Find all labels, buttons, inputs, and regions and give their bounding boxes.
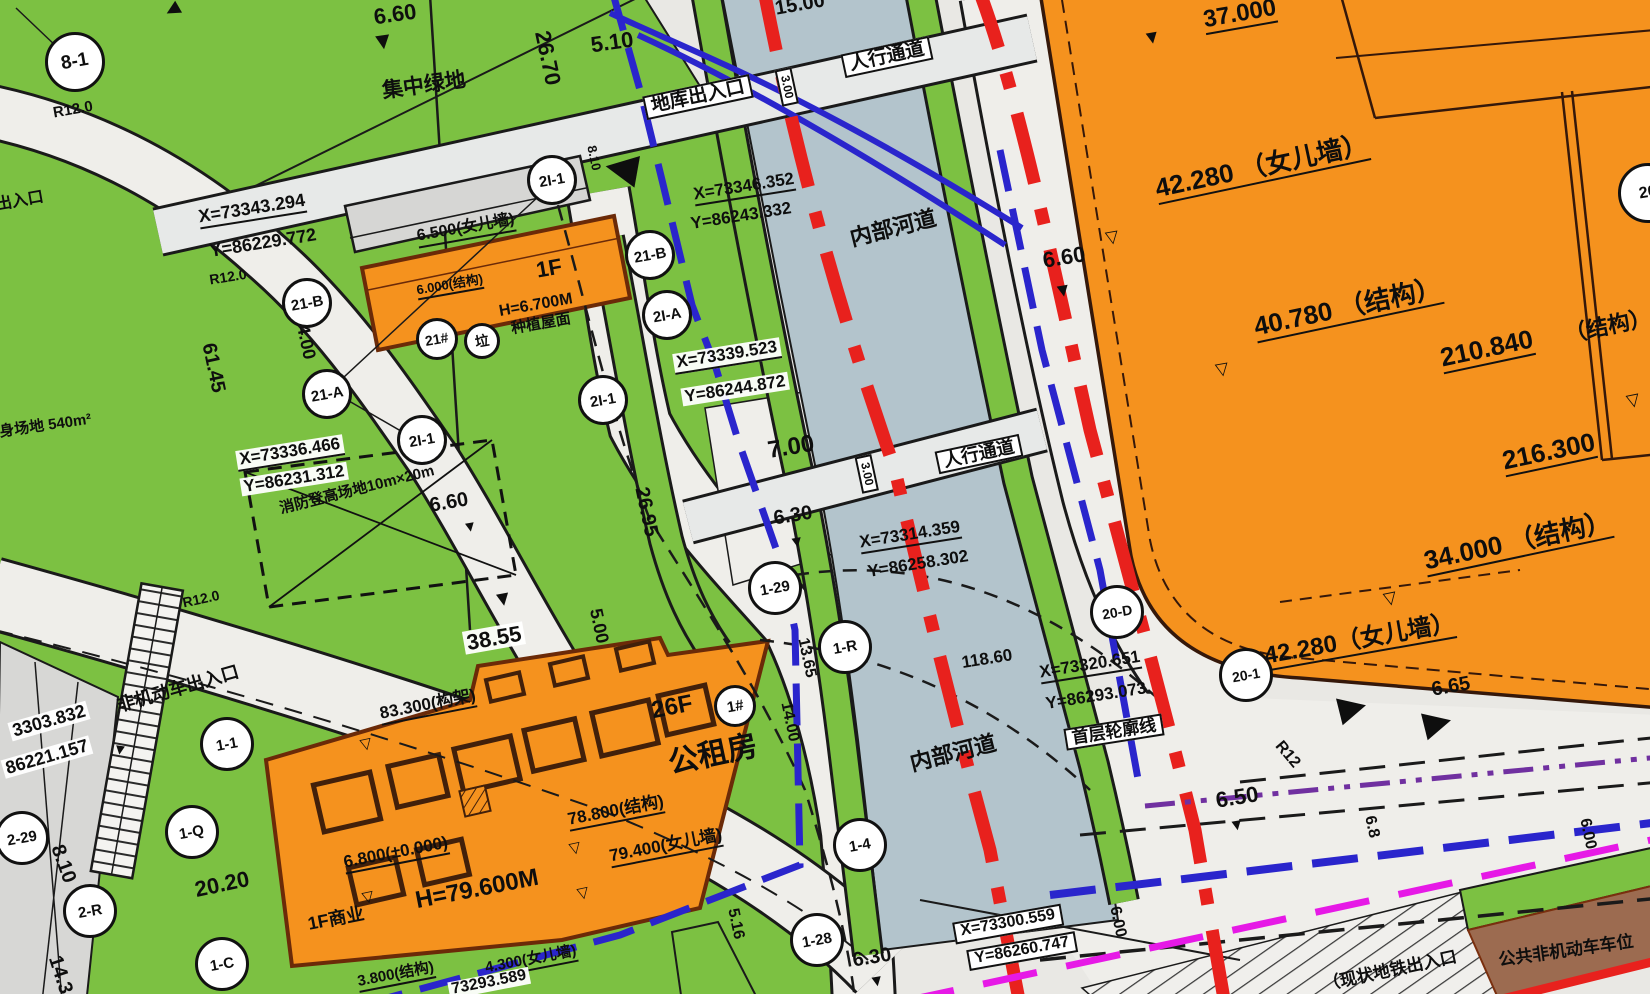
existing-metro-exit: （现状地铁出入口: [1322, 948, 1459, 994]
dim-6-00-right: 6.00: [1576, 817, 1599, 851]
floors-26f: 26F: [649, 691, 694, 724]
plot-2i-1-c-label: 2I-1: [589, 389, 617, 410]
plot-1-29: 1-29: [748, 561, 802, 615]
roof-42-280-parapet-low: 42.280（女儿墙）: [1262, 610, 1457, 671]
coord-y-86258-302: Y=86258.302: [866, 547, 969, 581]
left-arrow-garage: ◀: [602, 143, 641, 190]
garage-entrance: 地库出入口: [642, 74, 754, 120]
coord-x-73343-294: X=73343.294: [197, 191, 307, 229]
dim-3-00-mid: 3.00: [855, 454, 879, 494]
elev-6-50: 6.50: [1214, 782, 1260, 812]
coord-y-86244-872: Y=86244.872: [680, 372, 789, 406]
public-bicycle-parking: 公共非机动车车位: [1497, 933, 1634, 970]
plot-1-4: 1-4: [833, 818, 887, 872]
plot-21-b-b-label: 21-B: [633, 244, 668, 266]
radius-r12-road: R12.0: [208, 267, 247, 287]
plot-1-r-label: 1-R: [832, 637, 859, 658]
plot-2i-1-b: 2I-1: [397, 415, 447, 465]
dim-61-45: 61.45: [198, 341, 229, 394]
roof-210-840-structure: （结构）: [1563, 306, 1650, 347]
building-21: 21#: [416, 318, 458, 360]
dim-20-20: 20.20: [193, 867, 252, 901]
roof-216-300: 216.300: [1500, 428, 1598, 477]
dim-26-70: 26.70: [531, 29, 565, 88]
spot-arrow-6-30-bottom: ▼: [868, 973, 886, 992]
spot-arrow-6-60-right: ▼: [1052, 280, 1074, 302]
plot-8-1: 8-1: [45, 32, 105, 92]
roof-210-840: 210.840: [1438, 325, 1536, 374]
central-green-space: 集中绿地: [381, 69, 467, 103]
plot-1-r: 1-R: [818, 620, 872, 674]
plot-1-q-label: 1-Q: [178, 821, 206, 842]
plot-8-1-label: 8-1: [60, 49, 91, 75]
spot-arrow-37-000: ▼: [1141, 27, 1163, 49]
elev-6-60-fire: 6.60: [428, 489, 470, 516]
first-floor-outline: 首层轮廓线: [1063, 713, 1164, 750]
roof-6-500-parapet: 6.500(女儿墙): [416, 212, 517, 249]
plot-20-partial-label: 20: [1638, 183, 1650, 204]
dim-5-10: 5.10: [589, 28, 635, 57]
trash-symbol-label: 垃: [473, 330, 490, 352]
plot-20-1-label: 20-1: [1231, 665, 1261, 686]
plot-2i-a: 2I-A: [642, 290, 692, 340]
dim-14-00: 14.00: [777, 701, 802, 744]
plot-21-b-a-label: 21-B: [290, 292, 325, 314]
plot-20-d: 20-D: [1090, 585, 1144, 639]
plot-2i-a-label: 2I-A: [652, 304, 683, 326]
roof-83-300-frame: 83.300(构架): [378, 686, 478, 725]
elev-6-30-bottom: 6.30: [851, 945, 893, 972]
annotation-layer: R12.0出入口6.60集中绿地26.705.10地库出入口3.00人行通道15…: [0, 0, 1650, 994]
plot-1-1: 1-1: [200, 717, 254, 771]
spot-arrow-6-30-mid: ▼: [788, 534, 806, 553]
plot-1-c: 1-C: [195, 937, 249, 991]
plot-21-b-a: 21-B: [282, 278, 332, 328]
open-tri-34-000: ▽: [1382, 588, 1398, 607]
river-label-top: 内部河道: [848, 206, 939, 250]
plot-1-28-label: 1-28: [801, 929, 834, 951]
plot-1-q: 1-Q: [165, 805, 219, 859]
plot-2i-1-b-label: 2I-1: [408, 429, 436, 450]
open-tri-42-280: ▽: [1104, 227, 1120, 246]
plot-20-d-label: 20-D: [1101, 601, 1134, 622]
site-plan: R12.0出入口6.60集中绿地26.705.10地库出入口3.00人行通道15…: [0, 0, 1650, 994]
plot-2-29-label: 2-29: [6, 827, 39, 849]
radius-r12-topleft: R12.0: [52, 99, 94, 121]
trash-symbol: 垃: [464, 323, 500, 359]
commercial-1f: 1F商业: [306, 904, 366, 933]
open-tri-40-780: ▽: [1214, 359, 1230, 378]
plot-21-a-a-label: 21-A: [310, 383, 345, 405]
dim-6-00-left: 6.00: [1106, 905, 1129, 939]
radius-r12-bottomroad: R12.0: [181, 588, 221, 610]
dim-15-00: 15.00: [774, 0, 827, 20]
plot-1-1-label: 1-1: [215, 734, 239, 755]
exit-partial-left: 出入口: [0, 190, 45, 215]
building-21-label: 21#: [424, 329, 450, 349]
open-tri-6-800: ▽: [361, 888, 375, 905]
elev-6-60-right: 6.60: [1041, 242, 1087, 272]
dim-7-00: 7.00: [766, 431, 816, 463]
big-arrow-right-1: ▶: [1334, 685, 1370, 727]
dim-3-00-top: 3.00: [775, 67, 799, 107]
elev-6-800-zero: 6.800(±0.000): [342, 834, 450, 875]
dim-5-00: 5.00: [586, 607, 612, 645]
dim-5-16: 5.16: [724, 907, 747, 941]
open-tri-79-400: ▽: [576, 884, 590, 901]
roof-79-400-parapet: 79.400(女儿墙): [608, 826, 724, 868]
roof-37-000: 37.000: [1201, 0, 1278, 35]
plot-2-r-label: 2-R: [77, 901, 104, 922]
coord-x-73339-523: X=73339.523: [672, 337, 782, 374]
plot-1-28: 1-28: [790, 913, 844, 967]
dim-26-95: 26.95: [631, 485, 662, 538]
roof-34-000-structure: 34.000 （结构）: [1422, 508, 1615, 577]
big-arrow-right-2: ▶: [1419, 700, 1455, 742]
coord-y-86229-772: Y=86229.772: [208, 225, 317, 260]
coord-y-86293-073: Y=86293.073: [1044, 679, 1147, 713]
dim-8-10-top: 8.10: [585, 144, 604, 172]
non-motor-entrance: 非机动车出入口: [115, 663, 241, 716]
plot-20-partial: 20: [1618, 163, 1650, 223]
elev-6-65: 6.65: [1430, 673, 1472, 700]
dim-4-00: 4.00: [293, 323, 319, 361]
roof-42-280-parapet: 42.280 （女儿墙）: [1153, 131, 1371, 206]
building-1: 1#: [714, 685, 756, 727]
dim-6-8: 6.8: [1360, 814, 1381, 839]
plot-1-c-label: 1-C: [209, 954, 236, 975]
down-arrow-38-55: ▼: [491, 587, 515, 611]
height-79-600: H=79.600M: [413, 865, 540, 914]
small-arrow-topleft: ◀: [162, 0, 183, 20]
dim-14-3: 14.3: [44, 953, 76, 994]
pedestrian-passage-mid: 人行通道: [935, 434, 1024, 474]
stairs-arrow: ▼: [112, 742, 129, 759]
dim-13-65: 13.65: [794, 637, 819, 680]
plot-21-b-b: 21-B: [625, 230, 675, 280]
plot-1-29-label: 1-29: [759, 577, 792, 599]
elev-6-60-top: 6.60: [372, 0, 418, 28]
dim-118-60: 118.60: [960, 646, 1013, 672]
spot-arrow-fire: ▼: [461, 518, 478, 535]
plot-2-29: 2-29: [0, 811, 49, 865]
roof-3-800-structure: 3.800(结构): [356, 959, 436, 992]
plot-21-a-a: 21-A: [302, 369, 352, 419]
spot-arrow-6-50: ▼: [1228, 817, 1246, 836]
open-tri-216-300: ▽: [1625, 390, 1641, 409]
elev-6-30-mid: 6.30: [772, 503, 814, 530]
plot-2i-1-c: 2I-1: [578, 375, 628, 425]
coord-3303-832: 3303.832: [7, 701, 90, 742]
roof-40-780-structure: 40.780 （结构）: [1252, 274, 1445, 343]
plot-2-r: 2-R: [63, 884, 117, 938]
spot-arrow-top-green: ▼: [370, 28, 397, 55]
plot-20-1: 20-1: [1219, 648, 1273, 702]
coord-86221-157: 86221.157: [1, 735, 94, 778]
dim-38-55: 38.55: [462, 621, 526, 654]
roof-78-800-structure: 78.800(结构): [566, 792, 666, 831]
radius-r12-corner: R12: [1271, 738, 1303, 771]
plot-1-4-label: 1-4: [848, 835, 872, 856]
open-tri-78-800: ▽: [568, 839, 582, 856]
fitness-area-540: 健身场地 540m²: [0, 412, 92, 443]
coord-x-73320-651: X=73320.651: [1038, 648, 1142, 684]
dim-8-10-bottom: 8.10: [46, 842, 79, 886]
plot-2i-1-a: 2I-1: [527, 155, 577, 205]
roof-6-000-structure: 6.000(结构): [415, 272, 484, 300]
open-tri-83-300: ▽: [359, 735, 373, 752]
public-rental-housing: 公租房: [666, 730, 761, 780]
river-label-bottom: 内部河道: [908, 731, 999, 775]
pedestrian-passage-top: 人行通道: [840, 36, 933, 78]
plot-2i-1-a-label: 2I-1: [538, 169, 566, 190]
building-1-label: 1#: [725, 696, 744, 716]
floors-1f: 1F: [534, 254, 563, 281]
